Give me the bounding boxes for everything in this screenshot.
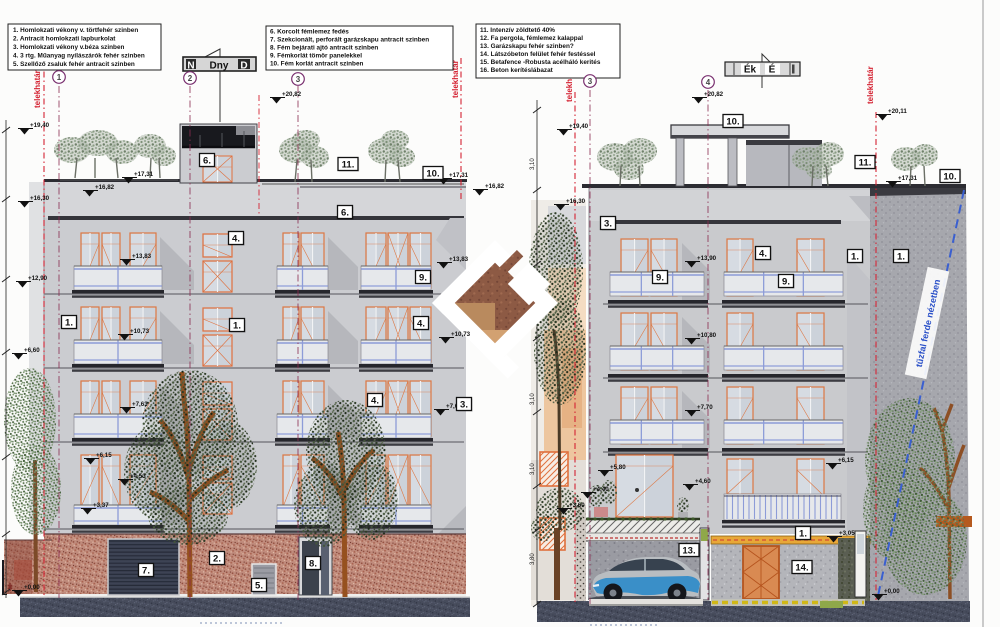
svg-text:N: N bbox=[187, 61, 194, 72]
svg-text:+6,15: +6,15 bbox=[96, 452, 112, 459]
svg-text:2. Antracit homlokzati lapburk: 2. Antracit homlokzati lapburkolat bbox=[13, 36, 116, 43]
svg-text:1.: 1. bbox=[851, 252, 859, 263]
svg-text:13. Garázskapu fehér szinben?: 13. Garázskapu fehér szinben? bbox=[480, 43, 574, 50]
svg-text:+6,60: +6,60 bbox=[24, 347, 40, 354]
svg-text:+0,00: +0,00 bbox=[884, 588, 900, 595]
svg-text:3.: 3. bbox=[460, 400, 468, 411]
svg-text:+10,73: +10,73 bbox=[451, 331, 471, 338]
svg-text:+13,90: +13,90 bbox=[697, 255, 717, 262]
svg-text:+10,73: +10,73 bbox=[130, 328, 150, 335]
svg-text:telekhatár: telekhatár bbox=[866, 66, 875, 104]
svg-text:+19,40: +19,40 bbox=[569, 123, 589, 130]
svg-text:10.: 10. bbox=[726, 117, 739, 128]
svg-text:11.: 11. bbox=[859, 158, 872, 169]
svg-text:7.: 7. bbox=[142, 566, 150, 577]
svg-text:9.: 9. bbox=[419, 273, 427, 284]
svg-text:9.: 9. bbox=[656, 273, 664, 284]
svg-text:10.: 10. bbox=[426, 169, 439, 180]
svg-text:+5,80: +5,80 bbox=[610, 464, 626, 471]
svg-text:6.: 6. bbox=[203, 156, 211, 167]
svg-text:telekhatár: telekhatár bbox=[33, 70, 42, 108]
svg-text:3: 3 bbox=[296, 75, 301, 84]
svg-text:4.: 4. bbox=[759, 249, 767, 260]
svg-text:10. Fém korlát antracit szinbe: 10. Fém korlát antracit szinben bbox=[270, 61, 364, 68]
svg-text:Dny: Dny bbox=[210, 61, 229, 72]
svg-text:+7,70: +7,70 bbox=[697, 404, 713, 411]
svg-text:6.: 6. bbox=[341, 208, 349, 219]
svg-text:1: 1 bbox=[57, 73, 62, 82]
svg-text:15. Betafence -Robusta acélhál: 15. Betafence -Robusta acélháló kerités bbox=[480, 59, 601, 66]
svg-text:5. Szellőző zsaluk fehér antra: 5. Szellőző zsaluk fehér antracit szinbe… bbox=[13, 61, 135, 68]
svg-text:1.: 1. bbox=[897, 252, 905, 263]
svg-text:+13,83: +13,83 bbox=[449, 256, 469, 263]
svg-text:+12,90: +12,90 bbox=[28, 275, 48, 282]
svg-text:3,10: 3,10 bbox=[530, 463, 536, 475]
svg-text:3,10: 3,10 bbox=[530, 158, 536, 170]
svg-text:+17,31: +17,31 bbox=[898, 175, 918, 182]
svg-text:16. Beton kerítéslábazat: 16. Beton kerítéslábazat bbox=[480, 67, 554, 74]
svg-text:+17,31: +17,31 bbox=[449, 172, 469, 179]
svg-text:12. Fa pergola, fémlemez kalap: 12. Fa pergola, fémlemez kalappal bbox=[480, 35, 583, 42]
svg-text:+3,37: +3,37 bbox=[93, 502, 109, 509]
svg-text:9. Fémkorlát tömör panelekkel: 9. Fémkorlát tömör panelekkel bbox=[270, 53, 362, 60]
svg-text:9.: 9. bbox=[782, 277, 790, 288]
svg-text:+13,83: +13,83 bbox=[132, 253, 152, 260]
svg-text:6. Korcolt fémlemez fedés: 6. Korcolt fémlemez fedés bbox=[270, 29, 349, 36]
svg-text:1.: 1. bbox=[799, 529, 807, 540]
svg-text:+20,11: +20,11 bbox=[888, 108, 907, 115]
svg-text:+19,40: +19,40 bbox=[30, 122, 50, 129]
svg-text:4.: 4. bbox=[371, 396, 379, 407]
svg-text:+10,80: +10,80 bbox=[697, 332, 717, 339]
svg-text:+3,60: +3,60 bbox=[569, 502, 585, 509]
svg-text:+0,00: +0,00 bbox=[24, 584, 40, 591]
svg-text:2: 2 bbox=[188, 74, 193, 83]
svg-text:+6,15: +6,15 bbox=[838, 457, 854, 464]
svg-text:+7,63: +7,63 bbox=[132, 401, 148, 408]
svg-text:É: É bbox=[769, 63, 776, 76]
svg-text:+3,05: +3,05 bbox=[839, 530, 855, 537]
svg-text:3. Homlokzati vékony v.béza sz: 3. Homlokzati vékony v.béza szinben bbox=[13, 44, 124, 51]
svg-text:11.: 11. bbox=[342, 160, 355, 171]
svg-text:14.: 14. bbox=[795, 563, 808, 574]
svg-text:+4,53: +4,53 bbox=[130, 473, 146, 480]
svg-text:D: D bbox=[240, 61, 247, 72]
svg-text:3,80: 3,80 bbox=[530, 553, 536, 565]
svg-text:1.: 1. bbox=[65, 318, 73, 329]
svg-text:Ék: Ék bbox=[744, 63, 757, 76]
svg-text:8.: 8. bbox=[309, 559, 317, 570]
svg-text:+17,31: +17,31 bbox=[134, 171, 154, 178]
svg-text:4.: 4. bbox=[417, 319, 425, 330]
svg-text:8. Fém bejárati ajtó antracit: 8. Fém bejárati ajtó antracit szinben bbox=[270, 45, 378, 52]
svg-text:10.: 10. bbox=[943, 172, 956, 183]
svg-text:13.: 13. bbox=[682, 546, 695, 557]
svg-text:7. Szekcionált, perforált gará: 7. Szekcionált, perforált garázskapu ant… bbox=[270, 37, 429, 44]
svg-text:+16,30: +16,30 bbox=[566, 198, 586, 205]
svg-text:+20,82: +20,82 bbox=[282, 91, 302, 98]
svg-text:11. Intenzív zöldtető 40%: 11. Intenzív zöldtető 40% bbox=[480, 27, 555, 34]
svg-text:+20,82: +20,82 bbox=[704, 91, 724, 98]
svg-text:5.: 5. bbox=[255, 581, 263, 592]
svg-text:+16,82: +16,82 bbox=[95, 184, 115, 191]
svg-text:3,10: 3,10 bbox=[530, 393, 536, 405]
svg-text:+4,60: +4,60 bbox=[695, 478, 711, 485]
svg-text:1.: 1. bbox=[233, 321, 241, 332]
svg-text:3: 3 bbox=[588, 77, 593, 86]
svg-text:3.: 3. bbox=[604, 219, 612, 230]
svg-text:+4,40: +4,40 bbox=[593, 486, 609, 493]
svg-text:2.: 2. bbox=[213, 554, 221, 565]
svg-text:+16,30: +16,30 bbox=[30, 195, 50, 202]
svg-text:14. Látszóbeton felület fehér: 14. Látszóbeton felület fehér festéssel bbox=[480, 51, 596, 58]
svg-text:1. Homlokzati vékony v. törtfe: 1. Homlokzati vékony v. törtfehér szinbe… bbox=[13, 27, 138, 34]
svg-text:+16,82: +16,82 bbox=[485, 183, 505, 190]
svg-text:4.: 4. bbox=[232, 234, 240, 245]
svg-text:4: 4 bbox=[706, 78, 711, 87]
svg-text:4. 3 rtg. Műanyag nyílászárók: 4. 3 rtg. Műanyag nyílászárók fehér szin… bbox=[13, 53, 145, 60]
